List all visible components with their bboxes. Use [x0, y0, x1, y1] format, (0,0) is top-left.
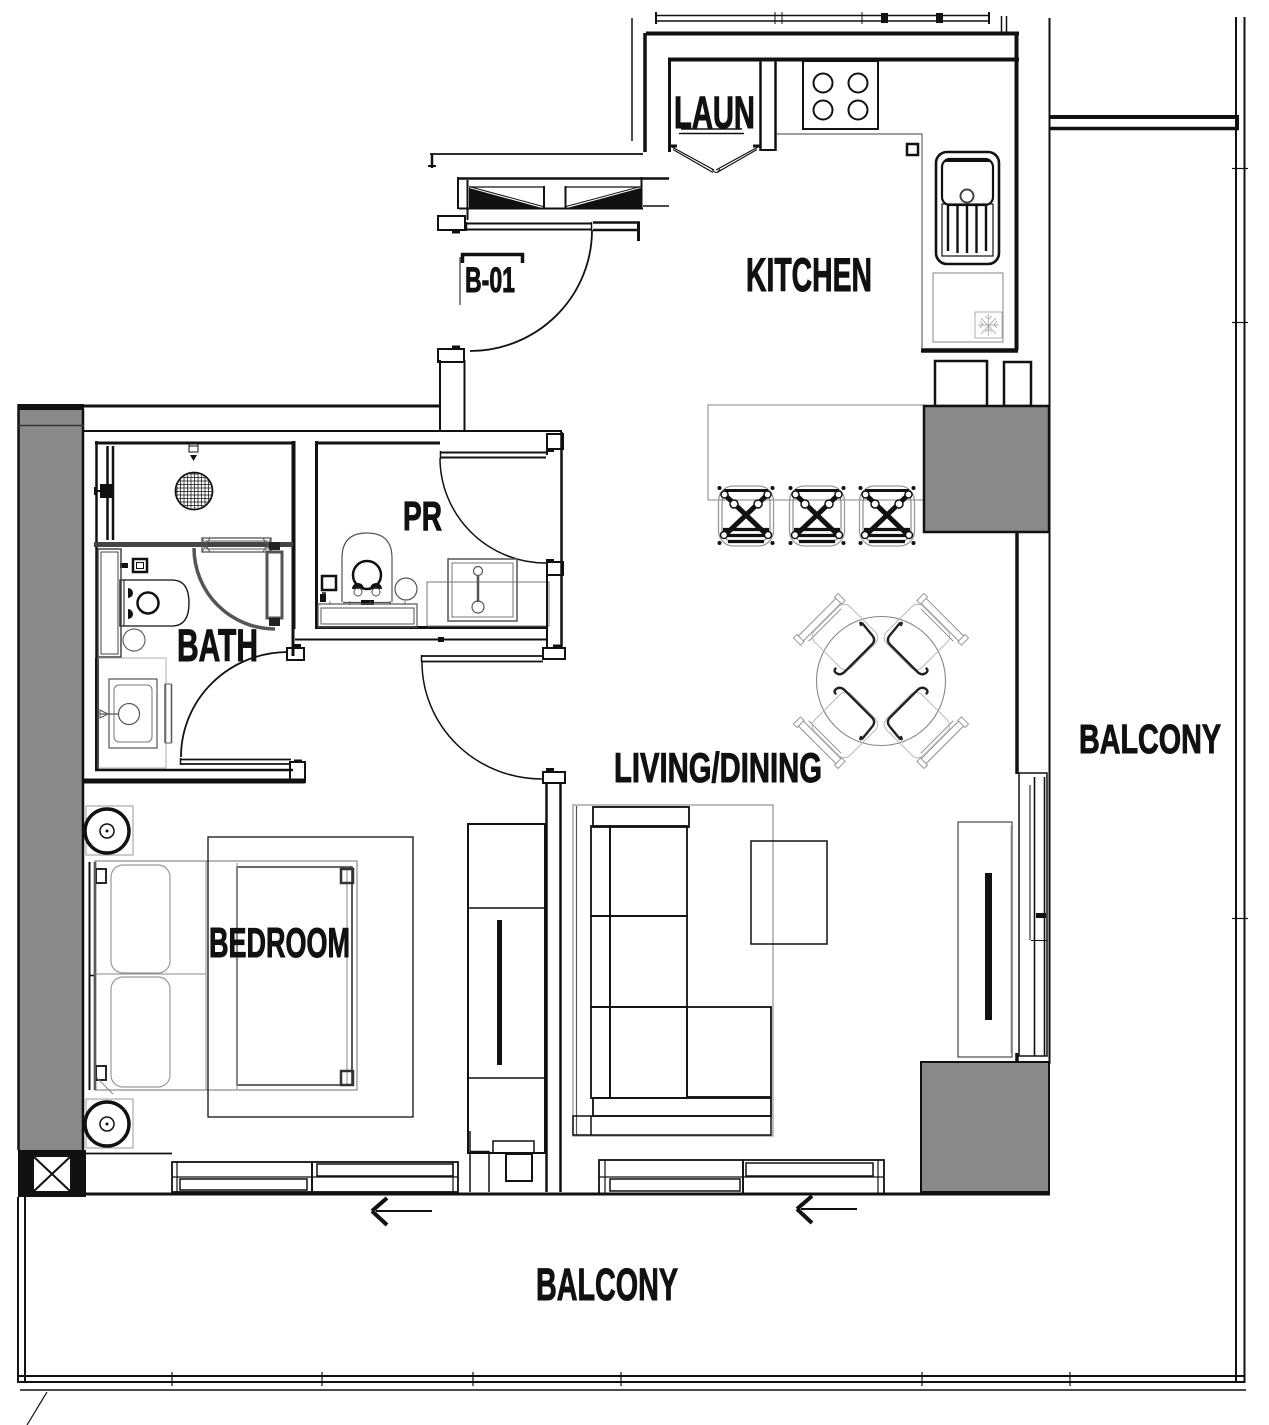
- svg-text:KITCHEN: KITCHEN: [746, 248, 872, 301]
- svg-text:BALCONY: BALCONY: [536, 1259, 678, 1310]
- svg-text:BALCONY: BALCONY: [1079, 716, 1221, 762]
- svg-text:BATH: BATH: [177, 620, 258, 671]
- svg-text:LAUN: LAUN: [674, 87, 755, 138]
- svg-text:BEDROOM: BEDROOM: [209, 919, 350, 966]
- svg-text:PR: PR: [403, 493, 442, 539]
- svg-text:B-01: B-01: [465, 261, 515, 300]
- svg-text:LIVING/DINING: LIVING/DINING: [614, 744, 822, 791]
